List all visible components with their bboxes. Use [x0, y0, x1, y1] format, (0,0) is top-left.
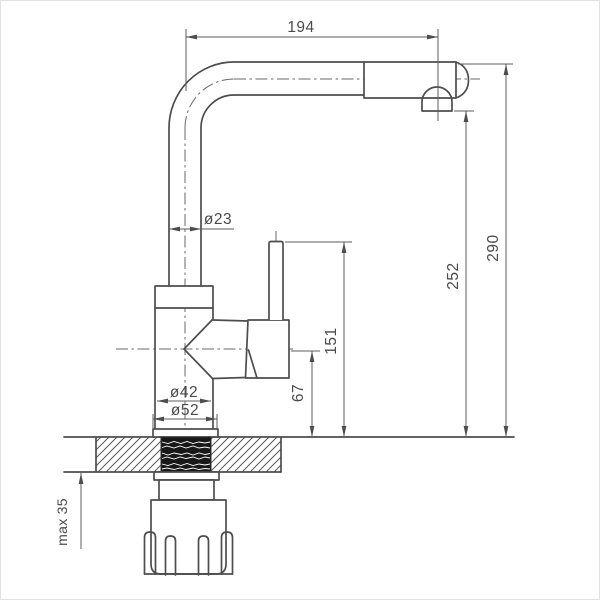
dim-label-151: 151 [323, 327, 340, 354]
faucet-technical-drawing: 194 290 252 151 67 ø23 [0, 0, 600, 600]
base-flange [153, 429, 218, 437]
centerlines [116, 79, 480, 480]
dim-label-d52: ø52 [171, 402, 199, 419]
counter-hatch-left [96, 437, 161, 472]
threaded-shank [161, 437, 211, 472]
dim-label-d23: ø23 [204, 211, 232, 228]
dimension-max-deck-thickness: max 35 [54, 473, 83, 549]
arrowhead [310, 426, 315, 437]
arrowhead [427, 35, 438, 40]
countertop-section [64, 437, 514, 472]
dimension-body-height: 67 [290, 351, 320, 437]
arrowhead [79, 473, 84, 484]
nut-neck [159, 480, 214, 500]
dim-label-290: 290 [485, 234, 502, 261]
arrowhead [200, 399, 211, 404]
spout-end-cap [456, 62, 469, 98]
dim-label-252: 252 [445, 262, 462, 289]
dimension-lever-height: 151 [285, 242, 352, 437]
arrowhead [206, 417, 217, 422]
arrowhead [464, 426, 469, 437]
faucet-body [155, 286, 248, 429]
arrowhead [310, 351, 315, 362]
spout-end-housing [364, 62, 456, 98]
arrowhead [464, 111, 469, 122]
arrowhead [169, 227, 180, 232]
spout-assembly [169, 62, 469, 286]
arrowhead [186, 35, 197, 40]
bend-centerline [185, 79, 234, 128]
lever-handle [246, 242, 290, 379]
arrowhead [157, 399, 168, 404]
mounting-washer [154, 472, 219, 480]
arrowhead [504, 64, 509, 75]
dim-label-max35: max 35 [54, 498, 70, 546]
dimension-body-diameter: ø42 [157, 384, 211, 403]
lever-rod [269, 242, 283, 321]
drawing-svg: 194 290 252 151 67 ø23 [1, 1, 599, 599]
mounting-nut [151, 500, 226, 574]
arrowhead [342, 426, 347, 437]
cartridge-neck-top [213, 320, 248, 321]
arrowhead [190, 227, 201, 232]
dim-label-d42: ø42 [170, 384, 198, 401]
handle-housing [246, 320, 290, 378]
riser-collar [155, 286, 213, 308]
dim-label-194: 194 [287, 19, 314, 36]
arrowhead [504, 426, 509, 437]
dimension-outlet-height: 252 [445, 111, 474, 437]
cartridge-neck-bottom [213, 378, 246, 379]
counter-hatch-right [211, 437, 281, 472]
dim-label-67: 67 [290, 384, 307, 402]
arrowhead [342, 242, 347, 253]
